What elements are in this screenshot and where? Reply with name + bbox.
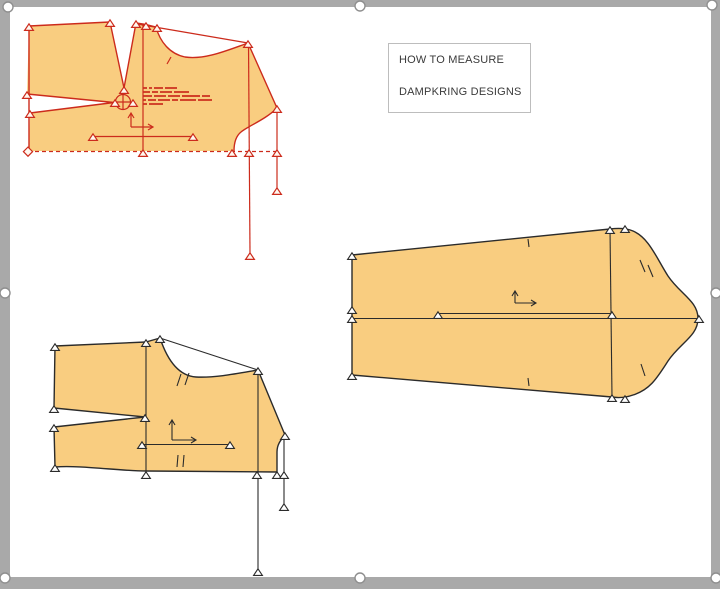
selection-handle-top-center[interactable] [355,1,365,11]
label-box[interactable]: HOW TO MEASURE DAMPKRING DESIGNS [388,43,531,113]
label-line-1: HOW TO MEASURE [399,54,530,66]
selection-handle-bottom-right[interactable] [711,573,720,583]
selection-handle-bottom-left[interactable] [0,573,10,583]
pivot-point-icon [116,95,131,110]
selection-handle-middle-left[interactable] [0,288,10,298]
selection-handle-bottom-center[interactable] [355,573,365,583]
pattern-piece-sleeve[interactable] [352,228,698,397]
label-line-2: DAMPKRING DESIGNS [399,86,530,98]
selection-handle-middle-right[interactable] [711,288,720,298]
selection-handle-top-right[interactable] [707,0,717,10]
selection-handle-top-left[interactable] [3,2,13,12]
pattern-canvas: HOW TO MEASURE DAMPKRING DESIGNS [0,0,720,589]
